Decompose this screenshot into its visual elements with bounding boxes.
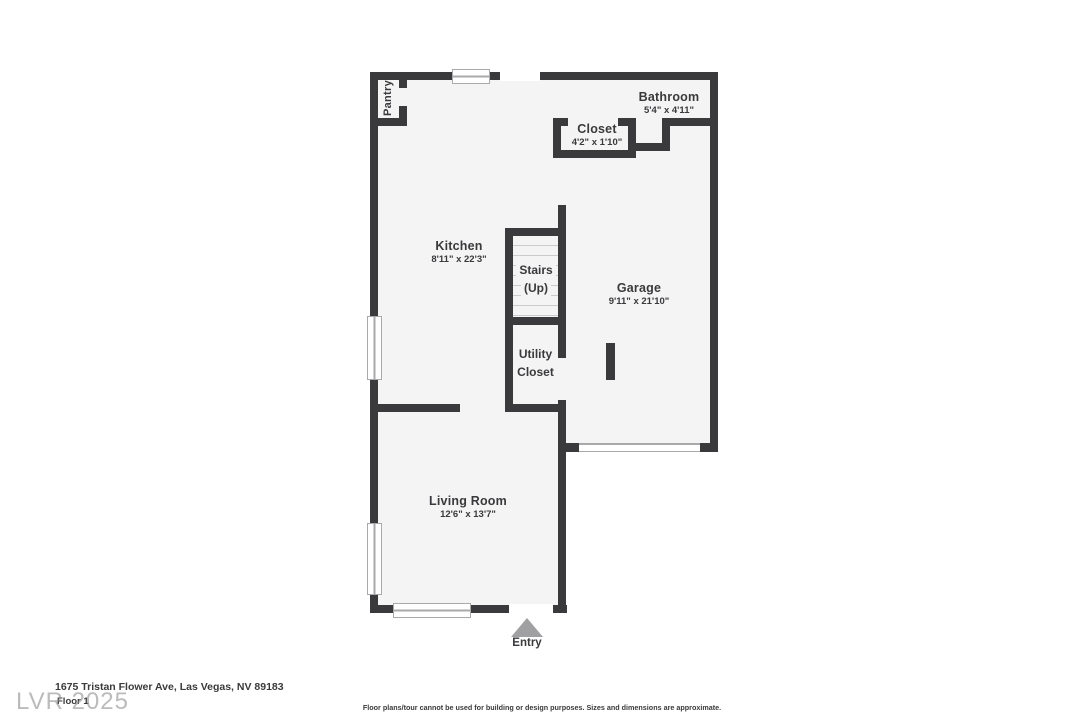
bathroom-wall-bottom-right xyxy=(666,118,718,126)
stairs-wall-bottom xyxy=(505,317,566,325)
bathroom-name: Bathroom xyxy=(622,90,716,104)
watermark-text: LVR 2025 xyxy=(16,688,129,716)
stairs-wall-top xyxy=(505,228,566,236)
opening-top xyxy=(500,70,540,81)
garage-door-stub-right xyxy=(700,443,718,452)
floor-plan-page: Pantry Kitchen 8'11" x 22'3" Bathroom 5'… xyxy=(0,0,1086,724)
living-room-dims: 12'6" x 13'7" xyxy=(383,510,553,521)
garage-door xyxy=(579,443,701,452)
stairs-line2: (Up) xyxy=(521,281,551,296)
stairs-label: Stairs (Up) xyxy=(506,261,566,298)
living-room-wall-top xyxy=(370,404,460,412)
window-bottom-living xyxy=(393,603,471,618)
closet-dims: 4'2" x 1'10" xyxy=(555,138,639,149)
window-top xyxy=(452,69,490,84)
floor-area-left xyxy=(374,76,566,610)
garage-name: Garage xyxy=(564,281,714,295)
closet-name: Closet xyxy=(555,122,639,136)
utility-closet-label: Utility Closet xyxy=(505,345,566,382)
window-left-living xyxy=(367,523,382,595)
wall-bottom-a xyxy=(370,605,395,613)
utility-line1: Utility xyxy=(516,347,555,362)
window-left-kitchen xyxy=(367,316,382,380)
utility-wall-bottom xyxy=(505,404,566,412)
wall-right xyxy=(710,72,718,452)
entry-label: Entry xyxy=(492,637,562,649)
disclaimer-text: Floor plans/tour cannot be used for buil… xyxy=(362,703,722,712)
stairs-line1: Stairs xyxy=(516,263,555,278)
garage-step xyxy=(606,343,615,380)
closet-label: Closet 4'2" x 1'10" xyxy=(555,122,639,149)
entry-opening xyxy=(509,604,553,614)
garage-label: Garage 9'11" x 21'10" xyxy=(564,281,714,308)
kitchen-name: Kitchen xyxy=(384,239,534,253)
closet-wall-bottom xyxy=(553,150,636,158)
wall-top-c xyxy=(540,72,718,80)
entry-arrow-icon xyxy=(511,618,543,637)
divider-wall-lower xyxy=(558,400,566,613)
bathroom-label: Bathroom 5'4" x 4'11" xyxy=(622,90,716,117)
wall-left-b xyxy=(370,378,378,525)
living-room-label: Living Room 12'6" x 13'7" xyxy=(383,494,553,521)
wall-bottom-b xyxy=(469,605,509,613)
pantry-name: Pantry xyxy=(382,80,394,116)
utility-line2: Closet xyxy=(514,365,557,380)
bathroom-dims: 5'4" x 4'11" xyxy=(622,106,716,117)
living-room-name: Living Room xyxy=(383,494,553,508)
pantry-label: Pantry xyxy=(366,74,410,122)
garage-dims: 9'11" x 21'10" xyxy=(564,297,714,308)
